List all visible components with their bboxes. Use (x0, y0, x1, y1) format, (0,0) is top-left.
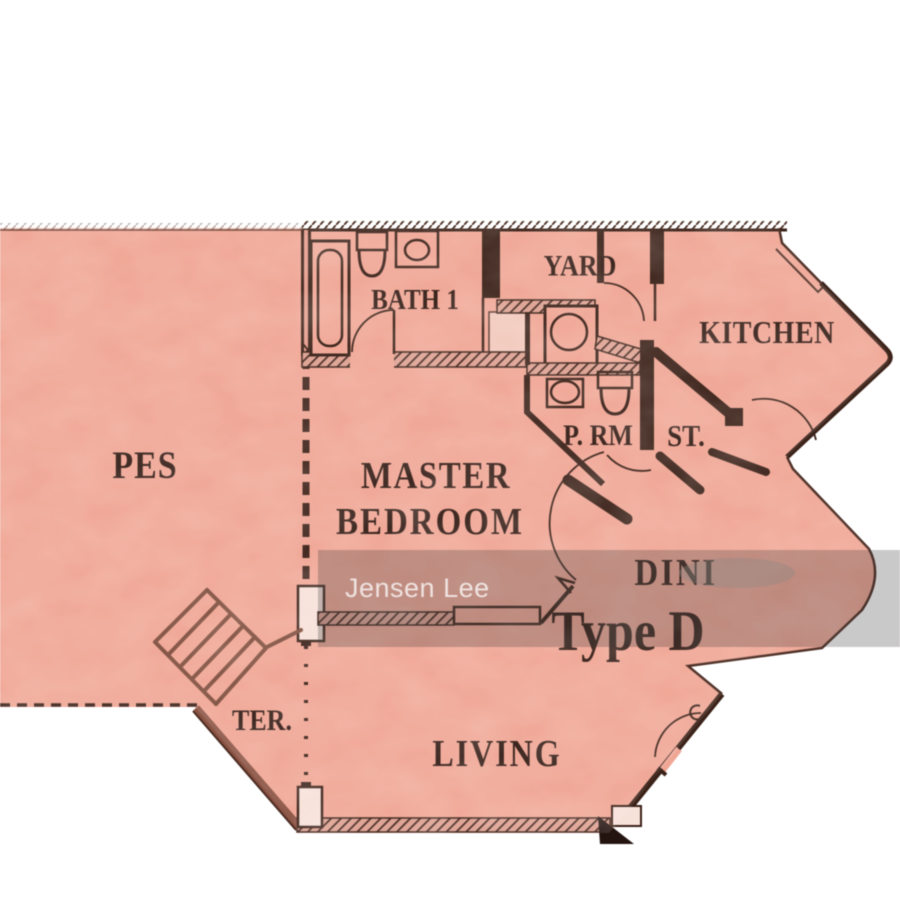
svg-text:Jensen Lee: Jensen Lee (345, 573, 490, 603)
